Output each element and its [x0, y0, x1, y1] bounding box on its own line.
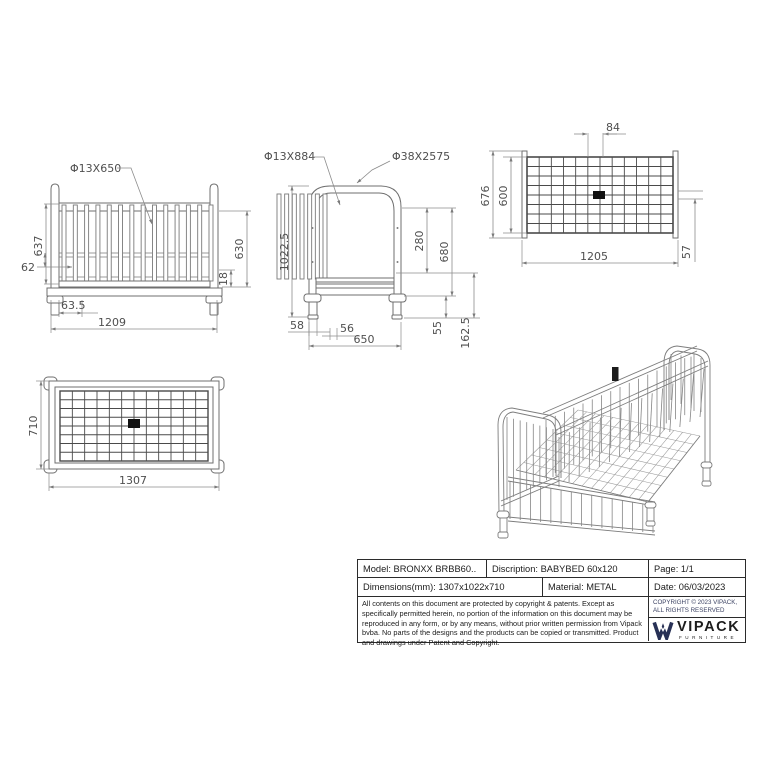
- front-slats: [62, 205, 213, 281]
- base-inner-depth-dim: 600: [497, 186, 510, 207]
- technical-drawing-page: Φ13X650 637 62 63.5 1209 630 18: [0, 0, 759, 759]
- front-view: Φ13X650 637 62 63.5 1209 630 18: [21, 162, 251, 333]
- copyright-note: COPYRIGHT © 2023 VIPACK, ALL RIGHTS RESE…: [649, 597, 745, 618]
- crib-label-marker: [612, 367, 619, 381]
- mattress-hatch-a: [516, 410, 700, 502]
- side-bar-pitch-dim: 56: [340, 322, 354, 335]
- side-view: Φ13X884 Φ38X2575 1022.5 280 680 55 162.5…: [264, 150, 480, 350]
- side-total-height-dim: 1022.5: [278, 233, 291, 272]
- model-cell: Model: BRONXX BRBB60..: [358, 560, 487, 578]
- side-foot-height-dim: 55: [431, 321, 444, 335]
- side-bar-callout: Φ13X884: [264, 150, 315, 163]
- front-left-post: [51, 184, 59, 290]
- copyright-line1: COPYRIGHT © 2023 VIPACK,: [653, 599, 737, 606]
- front-base-dim: 18: [217, 272, 230, 286]
- side-width-dim: 650: [354, 333, 375, 346]
- copyright-line2: ALL RIGHTS RESERVED: [653, 607, 725, 614]
- brand-name: VIPACK: [677, 620, 740, 635]
- front-side-height-dim: 630: [233, 239, 246, 260]
- dimensions-cell: Dimensions(mm): 1307x1022x710: [358, 578, 543, 597]
- top-label-marker: [128, 419, 140, 428]
- page-cell: Page: 1/1: [649, 560, 745, 578]
- material-cell: Material: METAL: [543, 578, 649, 597]
- description-cell: Discription: BABYBED 60x120: [487, 560, 649, 578]
- side-upper-dim: 280: [413, 231, 426, 252]
- perspective-view: [497, 346, 712, 538]
- base-view: 84 676 600 1205 57: [479, 121, 703, 267]
- front-bar-callout: Φ13X650: [70, 162, 121, 175]
- title-block: Model: BRONXX BRBB60.. Discription: BABY…: [357, 559, 746, 643]
- top-view: 710 1307: [27, 377, 224, 491]
- base-label-marker: [593, 191, 605, 199]
- top-width-dim: 1307: [119, 474, 147, 487]
- front-inner-height-dim: 637: [32, 236, 45, 257]
- vipack-logo-icon: [652, 621, 674, 640]
- side-tube-callout: Φ38X2575: [392, 150, 450, 163]
- brand-tagline: FURNITURE: [679, 636, 740, 641]
- side-leg-offset-dim: 58: [290, 319, 304, 332]
- front-bottom-rail: [59, 281, 210, 287]
- side-rail-height-dim: 680: [438, 242, 451, 263]
- base-width-dim: 1205: [580, 250, 608, 263]
- front-width-dim: 1209: [98, 316, 126, 329]
- base-offset-dim: 57: [680, 245, 693, 259]
- front-base-platform: [47, 288, 222, 296]
- mattress-hatch-b: [516, 410, 700, 502]
- front-foot-offset-dim: 63.5: [61, 299, 86, 312]
- base-outer-depth-dim: 676: [479, 186, 492, 207]
- date-cell: Date: 06/03/2023: [649, 578, 745, 597]
- near-side-slats: [559, 369, 704, 487]
- legal-text: All contents on this document are protec…: [358, 597, 649, 641]
- base-slot-dim: 84: [606, 121, 620, 134]
- front-pitch-dim: 62: [21, 261, 35, 274]
- side-base-height-dim: 162.5: [459, 317, 472, 349]
- top-depth-dim: 710: [27, 416, 40, 437]
- near-lower-slats: [510, 481, 653, 533]
- brand-cell: COPYRIGHT © 2023 VIPACK, ALL RIGHTS RESE…: [649, 597, 745, 641]
